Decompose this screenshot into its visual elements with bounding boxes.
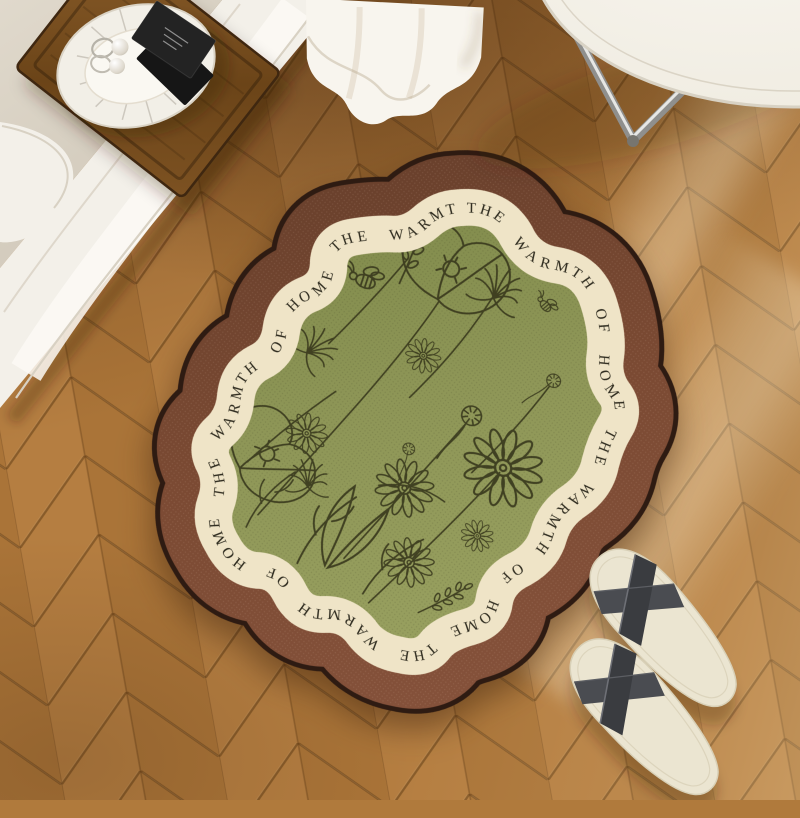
scene-product-photo: { "scene": { "type": "product-photo", "s…: [0, 0, 800, 800]
stool: [0, 0, 800, 300]
stool-foot-cap: [627, 135, 639, 147]
slippers: [500, 480, 800, 800]
